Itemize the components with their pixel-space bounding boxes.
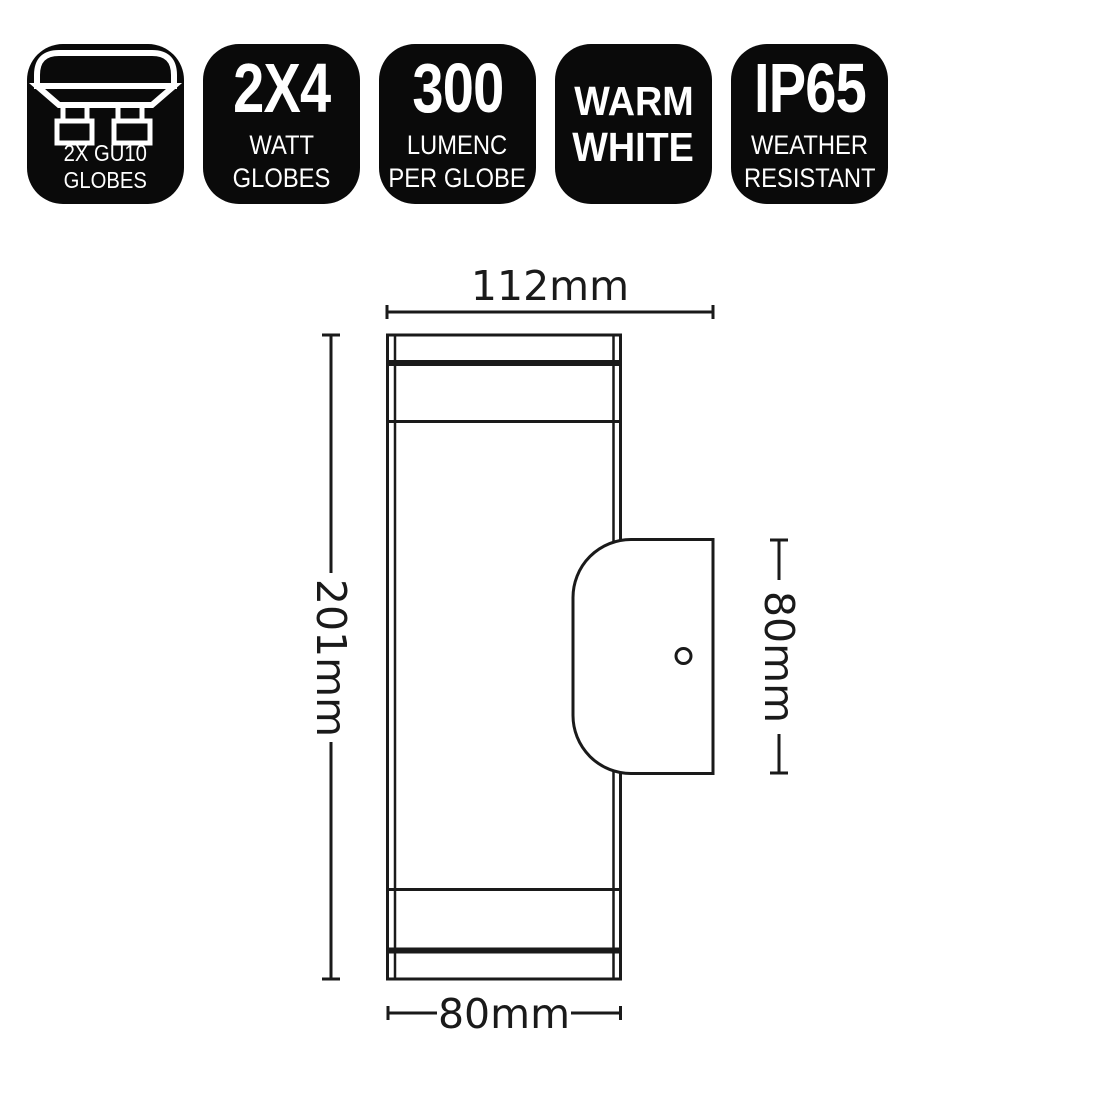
dim-label-body-width: 80mm <box>438 990 570 1038</box>
dim-body-width: 80mm <box>388 990 621 1038</box>
dim-overall-width: 112mm <box>387 262 713 319</box>
dim-label-overall-width: 112mm <box>471 262 629 310</box>
mounting-bracket <box>573 540 713 774</box>
product-dimension-diagram: 112mm 201mm 80mm 80mm <box>0 0 1100 1100</box>
dim-label-body-height: 201mm <box>307 579 355 737</box>
dim-label-bracket-height: 80mm <box>755 591 803 723</box>
dim-body-height: 201mm <box>307 335 355 979</box>
dim-bracket-height: 80mm <box>755 540 803 773</box>
